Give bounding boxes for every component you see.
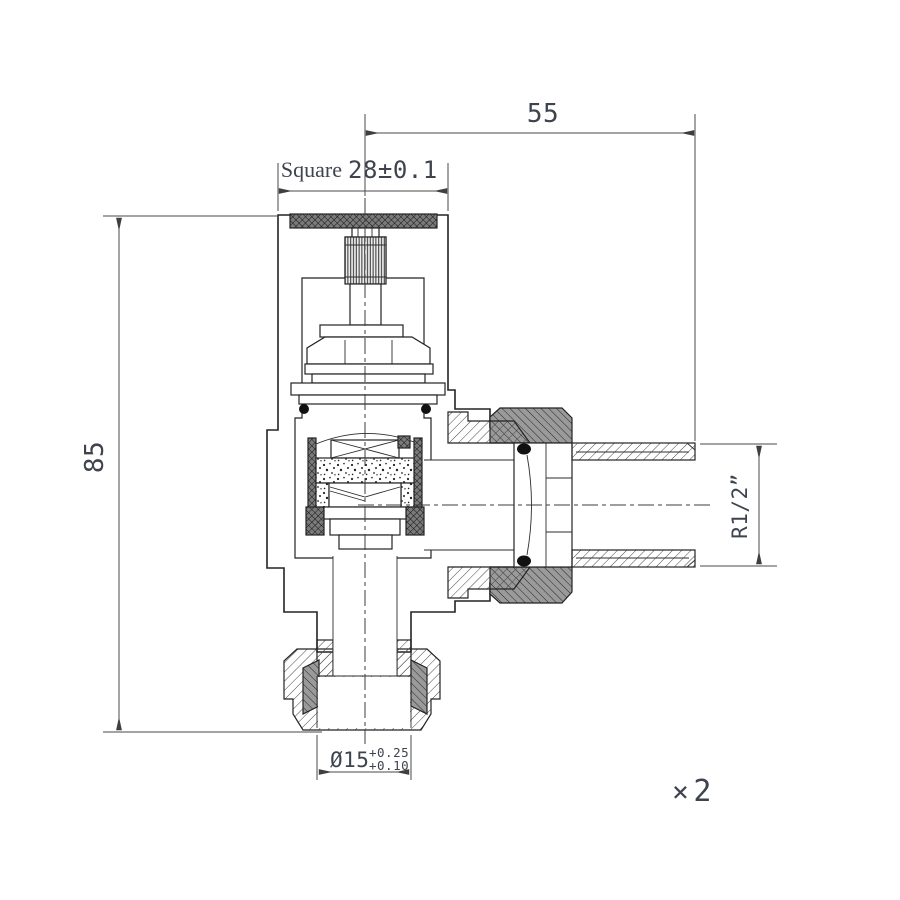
seal-left — [306, 507, 324, 535]
dim-diameter-label: Ø15 — [330, 748, 369, 772]
valve-section-drawing: 55 Square 28±0.1 85 R1/2” Ø15 +0.25 +0.1… — [0, 0, 900, 900]
dim-square-value: 28±0.1 — [348, 156, 438, 184]
o-ring-left — [299, 404, 309, 414]
dim-square-prefix: Square — [281, 157, 342, 182]
seal-right — [406, 507, 424, 535]
o-ring-outlet-bottom — [517, 556, 531, 567]
valve-cap — [290, 214, 437, 228]
quantity-count: 2 — [693, 774, 712, 809]
o-ring-outlet-top — [517, 444, 531, 455]
dim-diameter-tol-lower: +0.10 — [369, 758, 409, 773]
compression-fitting — [284, 556, 440, 730]
dim-thread-right-label: R1/2” — [728, 473, 752, 539]
o-ring-right — [421, 404, 431, 414]
quantity-symbol: × — [672, 775, 689, 808]
technical-drawing-canvas: 55 Square 28±0.1 85 R1/2” Ø15 +0.25 +0.1… — [0, 0, 900, 900]
olive-right — [411, 660, 427, 714]
dim-height-left-label: 85 — [80, 441, 110, 473]
dim-width-top-label: 55 — [527, 99, 559, 129]
quantity-label: ×2 — [672, 774, 712, 809]
